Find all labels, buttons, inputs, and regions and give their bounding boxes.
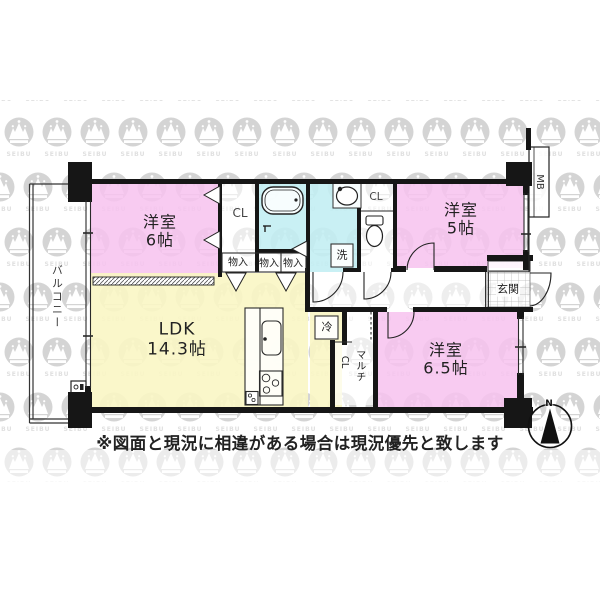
bathtub xyxy=(262,187,303,214)
room-label-ldk: LDK 14.3帖 xyxy=(147,320,207,359)
hallway xyxy=(308,272,487,307)
pillar-top-right xyxy=(506,162,532,186)
floorplan-drawing: SEIBU xyxy=(0,0,600,600)
kitchen-faucet-icon xyxy=(263,337,267,341)
entrance-label: 玄関 xyxy=(496,284,520,297)
wall-right65-stub-bottom xyxy=(517,373,524,400)
storage3-label: 物入 xyxy=(283,258,303,270)
room-label-western5: 洋室 5帖 xyxy=(444,202,478,239)
room-western65-size: 6.5帖 xyxy=(423,360,468,378)
room-western5-size: 5帖 xyxy=(444,220,478,238)
closet-right-label: CL xyxy=(369,191,382,203)
pillar-bottom-right xyxy=(504,398,532,428)
washbasin xyxy=(333,182,361,208)
wall-bottom xyxy=(85,407,533,413)
kitchen-counter xyxy=(245,308,283,405)
storage2-label: 物入 xyxy=(259,258,279,270)
wall-mb-stub xyxy=(526,128,531,150)
wall-fridge-nook xyxy=(342,312,347,345)
room-ldk-size: 14.3帖 xyxy=(147,340,207,360)
washer-label: 洗 xyxy=(337,250,348,263)
fridge-label: 冷 xyxy=(322,322,333,335)
wall-top xyxy=(88,179,512,184)
room-western5-name: 洋室 xyxy=(444,202,478,220)
pillar-bottom-left xyxy=(68,392,92,428)
room-ldk-name: LDK xyxy=(147,320,207,340)
wall-western5-bottom-b xyxy=(434,266,487,272)
multi-closet-kana-label: マルチ xyxy=(353,350,365,383)
floorplan-page: SEIBU xyxy=(0,0,600,600)
wall-toilet-western5 xyxy=(393,184,397,272)
watermark-band-faded xyxy=(0,450,600,482)
wall-right5-stub-bottom xyxy=(523,250,529,270)
compass-north-label: N xyxy=(545,399,553,409)
wall-western65-left xyxy=(373,307,378,407)
toilet xyxy=(366,216,383,247)
room-label-western6: 洋室 6帖 xyxy=(143,214,177,251)
meter-box-label: MB xyxy=(533,174,545,190)
multi-closet-suffix-label: CL xyxy=(338,356,350,369)
wall-washroom-toilet xyxy=(357,208,361,272)
room-western65-name: 洋室 xyxy=(423,342,468,360)
room-western6-size: 6帖 xyxy=(143,232,177,250)
wall-washroom-bottom xyxy=(343,268,359,272)
balcony-label: バルコニー xyxy=(50,265,63,330)
kitchen-appliance xyxy=(246,392,258,405)
multi-closet-vestibule xyxy=(347,312,373,342)
wall-hall-bottom-b xyxy=(413,307,533,312)
room-label-western65: 洋室 6.5帖 xyxy=(423,342,468,379)
wall-multicl-left xyxy=(330,340,335,407)
closet-left-label: CL xyxy=(232,207,247,221)
sliding-door-hatch xyxy=(93,277,214,285)
pillar-top-left xyxy=(68,162,92,202)
wall-hall-left xyxy=(305,268,310,312)
storage1-label: 物入 xyxy=(228,257,248,269)
wall-toilet-bottom xyxy=(391,268,397,272)
disclaimer-text: ※図面と現況に相違がある場合は現況優先と致します xyxy=(96,430,504,454)
room-western6-name: 洋室 xyxy=(143,214,177,232)
wall-bath-washroom xyxy=(306,184,310,272)
